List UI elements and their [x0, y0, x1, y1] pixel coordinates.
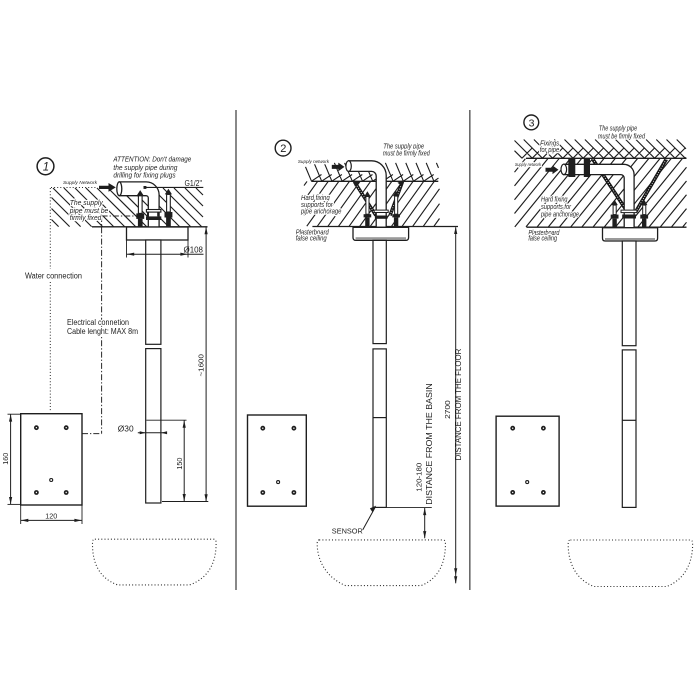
svg-text:3: 3 — [529, 117, 535, 129]
svg-text:The supply pipe: The supply pipe — [599, 126, 637, 133]
svg-text:The supply pipe: The supply pipe — [383, 143, 424, 150]
svg-text:2: 2 — [280, 143, 286, 155]
svg-text:SENSOR: SENSOR — [332, 527, 363, 536]
svg-text:150: 150 — [175, 458, 184, 470]
svg-text:1: 1 — [43, 162, 49, 174]
svg-text:false ceiling: false ceiling — [528, 234, 557, 243]
svg-text:Electrical connetion: Electrical connetion — [67, 318, 129, 327]
svg-text:120: 120 — [45, 511, 57, 520]
svg-text:Water connection: Water connection — [25, 272, 82, 281]
svg-text:DISTANCE FROM THE FLOOR: DISTANCE FROM THE FLOOR — [454, 348, 463, 460]
svg-text:Supply network: Supply network — [515, 162, 542, 167]
svg-text:must be firmly fixed: must be firmly fixed — [598, 133, 646, 140]
svg-text:DISTANCE FROM THE BASIN: DISTANCE FROM THE BASIN — [425, 383, 434, 505]
svg-text:false ceiling: false ceiling — [296, 233, 327, 242]
svg-text:must be firmly fixed: must be firmly fixed — [383, 151, 431, 158]
svg-text:Supply network: Supply network — [298, 159, 330, 165]
svg-text:~1600: ~1600 — [197, 354, 206, 377]
svg-text:pipe anchorage: pipe anchorage — [540, 209, 579, 218]
svg-text:160: 160 — [1, 453, 10, 465]
svg-text:Cable lenght: MAX 8m: Cable lenght: MAX 8m — [67, 327, 138, 336]
svg-text:pipe anchorage: pipe anchorage — [300, 207, 341, 216]
svg-text:drilling for fixing plugs: drilling for fixing plugs — [113, 171, 175, 180]
svg-text:Supply Network: Supply Network — [63, 180, 98, 185]
svg-text:2700: 2700 — [443, 400, 452, 419]
svg-text:G1/2": G1/2" — [185, 179, 203, 188]
svg-text:120-180: 120-180 — [414, 463, 423, 492]
svg-text:firmly fixed: firmly fixed — [70, 213, 102, 222]
svg-text:Ø30: Ø30 — [118, 425, 134, 434]
svg-text:for pipe: for pipe — [540, 145, 560, 154]
svg-text:Ø108: Ø108 — [184, 246, 204, 255]
